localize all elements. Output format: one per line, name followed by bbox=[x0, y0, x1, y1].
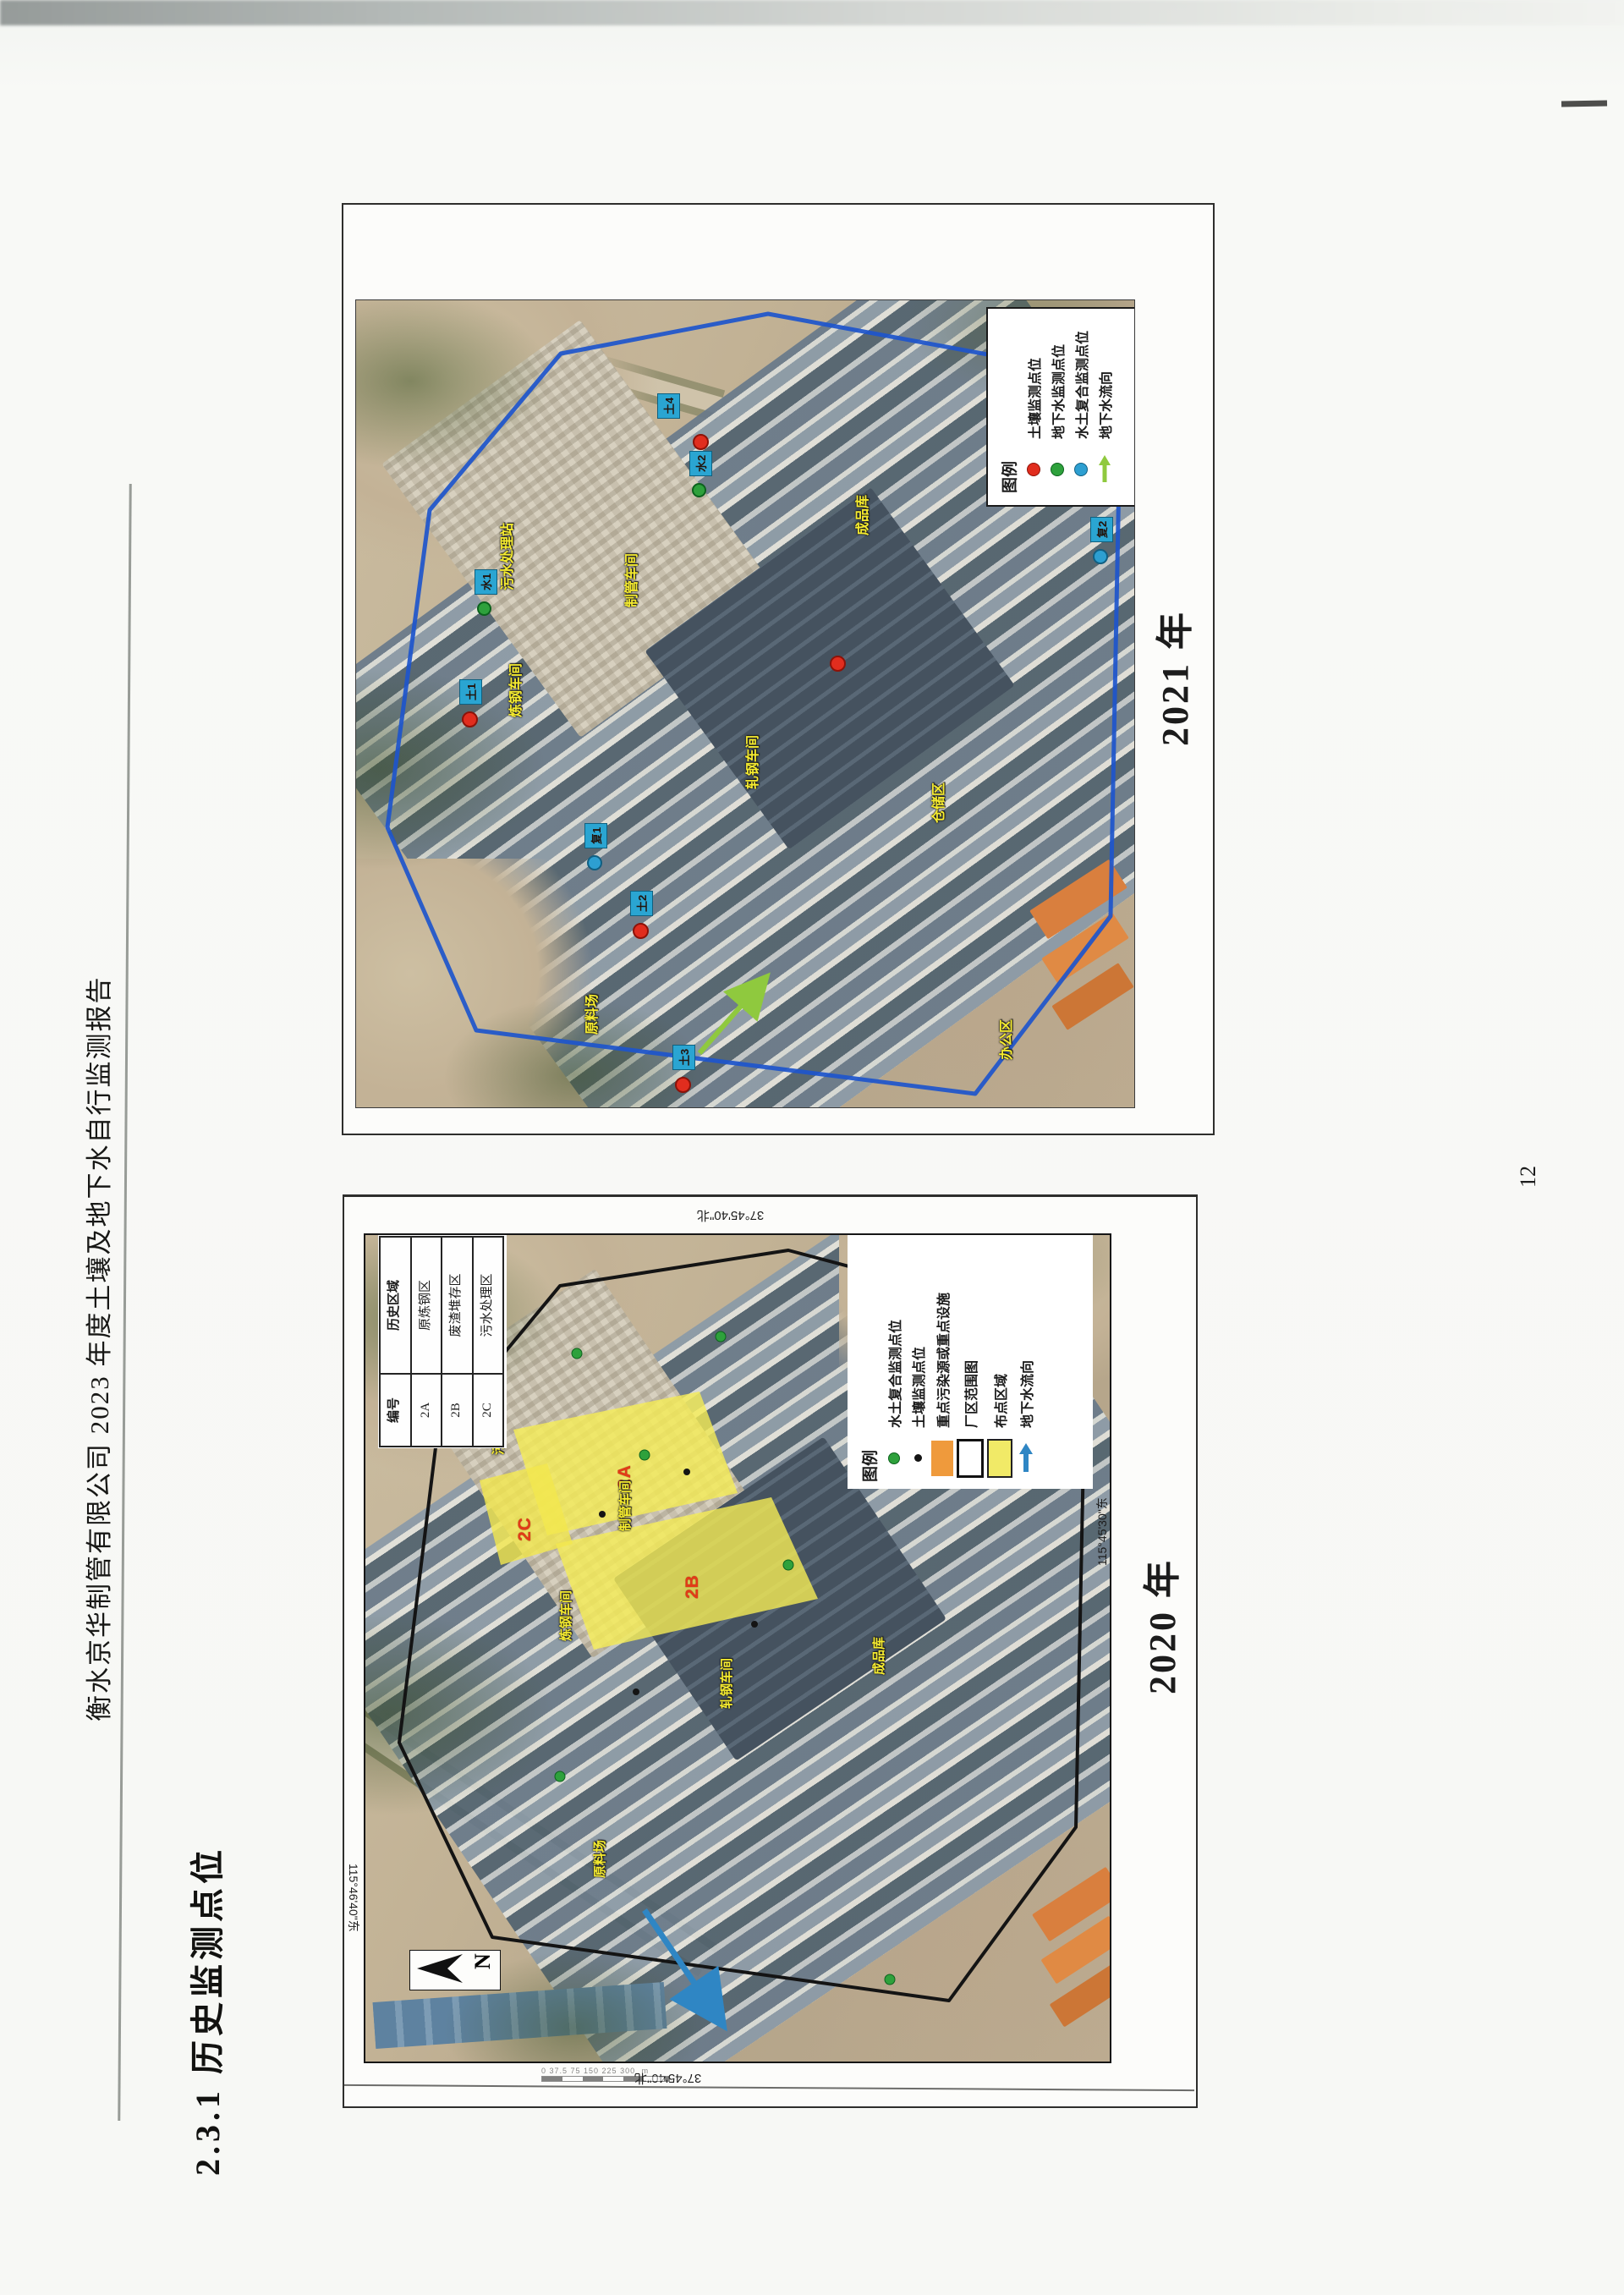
green-dot-icon bbox=[888, 1435, 900, 1482]
legend-item: 土壤监测点位 bbox=[908, 1237, 928, 1482]
monitoring-point-label: 土3 bbox=[672, 1045, 695, 1070]
cell-area: 废渣堆存区 bbox=[442, 1237, 473, 1374]
table-header-area: 历史区域 bbox=[380, 1237, 411, 1374]
soil-point-marker bbox=[675, 1077, 691, 1093]
area-label: 炼钢车间 bbox=[560, 1590, 573, 1641]
groundwater-point-marker bbox=[477, 601, 491, 616]
coord-label-right: 115°45'30"东 bbox=[1096, 1497, 1108, 1566]
cell-area: 原炼钢区 bbox=[411, 1237, 442, 1374]
groundwater-point-marker bbox=[692, 483, 706, 497]
zone-label: 2B bbox=[683, 1574, 701, 1599]
legend-item: 布点区域 bbox=[987, 1237, 1012, 1482]
legend-item: 地下水流向 bbox=[1016, 1237, 1036, 1482]
table-row: 2C 污水处理区 bbox=[473, 1237, 504, 1447]
table-row: 2A 原炼钢区 bbox=[411, 1237, 442, 1447]
groundwater-flow-arrow-2021 bbox=[700, 984, 760, 1053]
table-row: 编号 历史区域 bbox=[380, 1237, 411, 1447]
coord-label-left: 115°46'40"东 bbox=[348, 1864, 359, 1932]
binding-fold-line bbox=[118, 484, 131, 2121]
legend-item-label: 土壤监测点位 bbox=[1023, 358, 1044, 439]
area-label: 制管车间 bbox=[626, 553, 639, 607]
north-arrow: N bbox=[409, 1950, 501, 1990]
scan-band-top bbox=[0, 0, 1624, 25]
legend-item: 水土复合监测点位 bbox=[884, 1237, 904, 1482]
area-label: 原料场 bbox=[586, 994, 600, 1035]
legend-item: 地下水监测点位 bbox=[1047, 309, 1067, 493]
blue-arrow-icon bbox=[1019, 1435, 1033, 1482]
legend-2020: 图例 水土复合监测点位 土壤监测点位 重点污染源或重点设施 厂区范围图 布点区域 bbox=[853, 1233, 1095, 1485]
area-label: 轧钢车间 bbox=[747, 735, 760, 789]
legend-item-label: 布点区域 bbox=[990, 1374, 1010, 1428]
coord-label-top: 37°45'40"北 bbox=[697, 1209, 764, 1222]
satellite-map-2021: 污水处理站 制管车间 炼钢车间 轧钢车间 成品库 仓储区 原料场 办公区 水1 … bbox=[355, 299, 1135, 1108]
black-dot-icon bbox=[914, 1435, 922, 1482]
soil-point-marker bbox=[633, 923, 649, 939]
legend-item-label: 土壤监测点位 bbox=[908, 1347, 928, 1428]
legend-title: 图例 bbox=[997, 461, 1020, 493]
legend-item: 土壤监测点位 bbox=[1023, 309, 1044, 493]
area-label: 办公区 bbox=[1001, 1019, 1014, 1060]
year-label-2020: 2020 年 bbox=[1144, 1558, 1182, 1694]
area-label: 仓储区 bbox=[933, 782, 946, 823]
green-arrow-icon bbox=[1099, 446, 1111, 493]
scale-ticks: 0 37.5 75 150 225 300 bbox=[541, 2067, 635, 2075]
composite-point-marker bbox=[1093, 549, 1108, 564]
soil-point-marker bbox=[462, 711, 478, 727]
yellow-swatch-icon bbox=[987, 1435, 1012, 1482]
legend-item-label: 地下水监测点位 bbox=[1047, 344, 1067, 439]
scanned-report-page: { "page": { "side_title": "衡水京华制管有限公司 20… bbox=[0, 0, 1624, 2295]
monitoring-point-label: 复2 bbox=[1090, 517, 1113, 542]
composite-point-marker bbox=[587, 855, 602, 870]
monitoring-point-label: 水2 bbox=[689, 451, 712, 476]
page-number: 12 bbox=[1517, 1166, 1539, 1188]
groundwater-flow-arrow-2020 bbox=[645, 1910, 717, 2017]
soil-point-marker bbox=[693, 434, 709, 450]
monitoring-point-label: 土2 bbox=[630, 891, 653, 916]
legend-2021: 图例 土壤监测点位 地下水监测点位 水土复合监测点位 地下水流向 bbox=[992, 305, 1135, 497]
figure-2021: 污水处理站 制管车间 炼钢车间 轧钢车间 成品库 仓储区 原料场 办公区 水1 … bbox=[342, 203, 1215, 1135]
legend-item-label: 地下水流向 bbox=[1095, 371, 1115, 439]
green-dot-icon bbox=[1051, 446, 1064, 493]
report-side-title: 衡水京华制管有限公司 2023 年度土壤及地下水自行监测报告 bbox=[86, 976, 112, 1722]
legend-title: 图例 bbox=[858, 1450, 881, 1482]
scan-dash-top-right bbox=[1561, 101, 1607, 107]
zone-label: 2C bbox=[516, 1517, 534, 1541]
cell-area: 污水处理区 bbox=[473, 1237, 504, 1374]
soil-point-marker bbox=[830, 656, 846, 672]
section-heading: 2.3.1 历史监测点位 bbox=[191, 1846, 225, 2176]
table-row: 2B 废渣堆存区 bbox=[442, 1237, 473, 1447]
figure-2020: 2A 2B 2C 污水处理站 制管车间 炼钢车间 轧钢车间 原料场 成品库 编号… bbox=[343, 1194, 1198, 2108]
legend-item: 地下水流向 bbox=[1095, 309, 1115, 493]
cell-id: 2C bbox=[473, 1374, 504, 1447]
legend-item: 重点污染源或重点设施 bbox=[931, 1237, 953, 1482]
area-label: 污水处理站 bbox=[502, 523, 515, 590]
monitoring-point-label: 土4 bbox=[657, 393, 680, 419]
satellite-map-2020: 2A 2B 2C 污水处理站 制管车间 炼钢车间 轧钢车间 原料场 成品库 编号… bbox=[364, 1233, 1111, 2063]
white-swatch-icon bbox=[957, 1435, 984, 1482]
orange-swatch-icon bbox=[931, 1435, 953, 1482]
year-label-2021: 2021 年 bbox=[1157, 610, 1194, 746]
history-area-table: 编号 历史区域 2A 原炼钢区 2B 废渣堆存区 2C 污水处理区 bbox=[378, 1233, 507, 1448]
red-dot-icon bbox=[1027, 446, 1040, 493]
legend-item: 水土复合监测点位 bbox=[1071, 309, 1091, 493]
area-label: 成品库 bbox=[873, 1637, 886, 1675]
monitoring-point-label: 土1 bbox=[459, 679, 482, 705]
blue-dot-icon bbox=[1074, 446, 1088, 493]
cell-id: 2A bbox=[411, 1374, 442, 1447]
area-label: 原料场 bbox=[594, 1840, 606, 1878]
table-header-id: 编号 bbox=[380, 1374, 411, 1447]
scan-extra-line bbox=[344, 2084, 1194, 2091]
legend-item: 厂区范围图 bbox=[957, 1237, 984, 1482]
legend-item-label: 水土复合监测点位 bbox=[1071, 331, 1091, 439]
scale-bar: 0 37.5 75 150 225 300 m bbox=[541, 2067, 685, 2082]
monitoring-point-label: 复1 bbox=[584, 823, 607, 848]
monitoring-point-label: 水1 bbox=[475, 569, 497, 595]
legend-item-label: 重点污染源或重点设施 bbox=[932, 1293, 952, 1428]
area-label: 制管车间 bbox=[619, 1480, 632, 1531]
area-label: 成品库 bbox=[857, 495, 870, 535]
legend-item-label: 地下水流向 bbox=[1016, 1360, 1036, 1428]
area-label: 轧钢车间 bbox=[721, 1658, 733, 1709]
area-label: 炼钢车间 bbox=[510, 663, 524, 717]
north-label: N bbox=[470, 1953, 495, 1969]
cell-id: 2B bbox=[442, 1374, 473, 1447]
legend-item-label: 厂区范围图 bbox=[960, 1360, 980, 1428]
legend-item-label: 水土复合监测点位 bbox=[884, 1320, 904, 1428]
scale-unit: m bbox=[642, 2067, 650, 2075]
